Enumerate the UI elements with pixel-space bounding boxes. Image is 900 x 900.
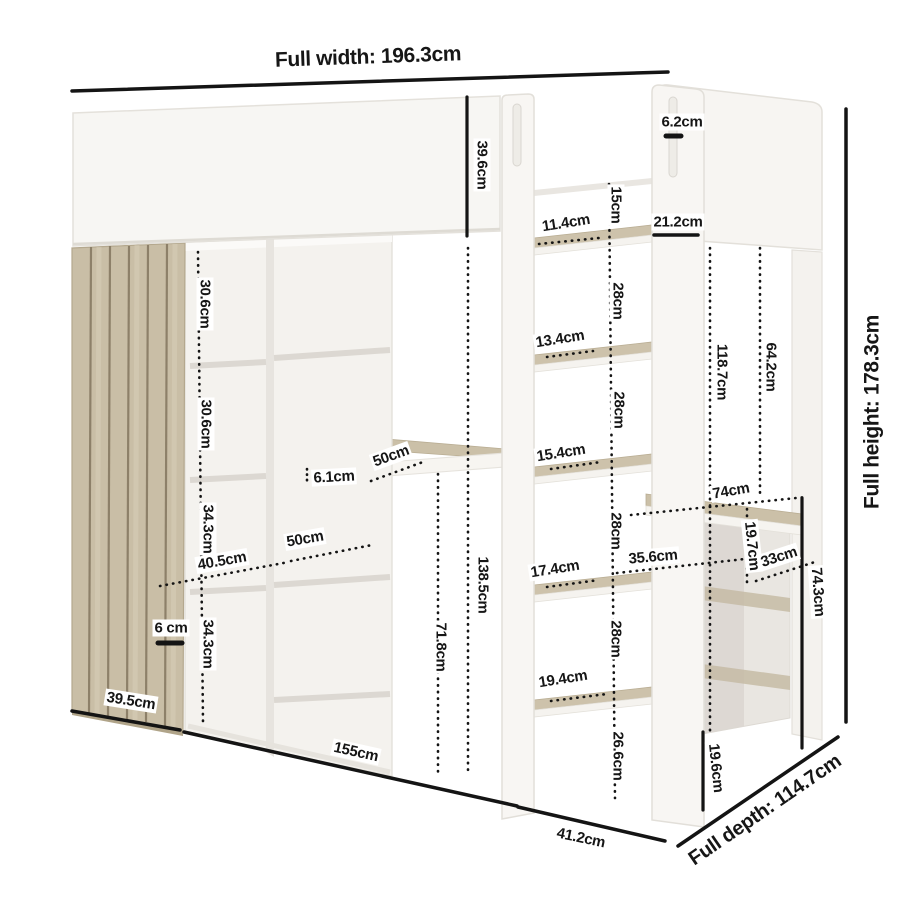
bed-front-rail [73,96,500,246]
dim-handle-slot-width: 6.2cm [659,114,704,131]
back-right-post [792,250,822,740]
dim-height-138-5: 138.5cm [475,554,492,615]
dim-desk-thickness: 6.1cm [311,467,357,486]
ladder-left-rail [502,94,534,819]
dim-step-gap-4: 28cm [608,618,625,659]
dim-step-gap-1: 28cm [610,280,627,321]
loft-bed-dimension-diagram: Full width: 196.3cm Full height: 178.3cm… [0,0,900,900]
dim-height-64-2: 64.2cm [763,340,780,393]
dim-cubby-2: 30.6cm [198,397,215,450]
dim-cubby-4: 34.3cm [200,617,217,670]
wardrobe-slat-door [72,243,185,736]
dim-step-gap-3: 28cm [608,510,625,551]
dim-step-gap-2: 28cm [611,389,628,430]
dim-step-gap-bottom: 26.6cm [610,729,627,782]
dim-height-74-3: 74.3cm [808,565,829,619]
dim-step-gap-top: 15cm [608,184,625,225]
grab-slot-left [513,104,521,166]
ladder-steps [534,225,652,717]
dim-end-panel-width: 21.2cm [651,214,704,231]
dim-cubby-1: 30.6cm [197,277,214,330]
ladder-right-rail [652,85,704,827]
dim-headboard-height: 39.6cm [474,138,491,191]
furniture-drawing [0,0,900,900]
dim-height-71-8: 71.8cm [433,620,450,673]
dim-height-118-7: 118.7cm [714,342,731,402]
dim-gap-6: 6 cm [153,620,190,637]
bed-base-edge [534,178,652,196]
dim-cubby-3: 34.3cm [200,502,217,555]
dim-full-height: Full height: 178.3cm [862,315,883,509]
full-width-line [72,72,668,91]
